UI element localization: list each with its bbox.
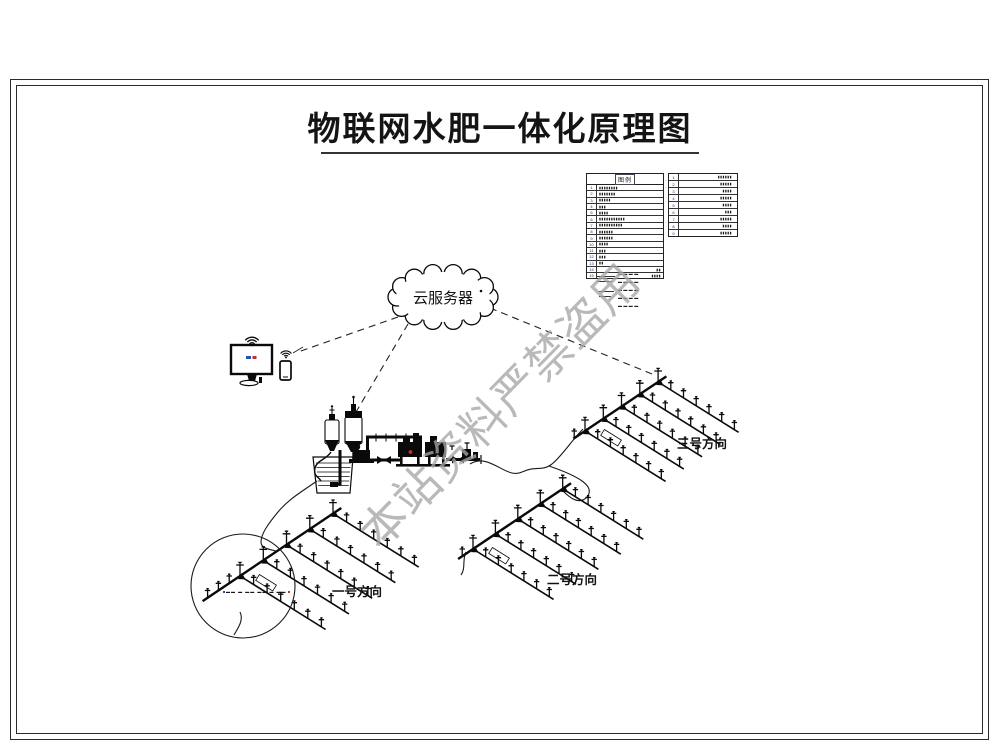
legend-row-desc: ▮▮▮▮▮▮▮▮▮▮ (597, 223, 663, 227)
legend-row-desc: ▮▮▮▮▮ (679, 196, 737, 200)
legend-row: 4▮▮▮▮▮ (669, 195, 737, 202)
legend-header: 图例 (587, 174, 663, 185)
leader-line (599, 291, 614, 292)
diagram-canvas: 云服务器 (0, 0, 1000, 750)
pipe-to-field3 (470, 429, 583, 473)
cloud-server-label: 云服务器 (413, 290, 473, 307)
legend-row-desc: ▮▮▮▮ (597, 242, 663, 246)
legend-row-desc: ▮▮ (597, 261, 663, 265)
irrigation-grid-1 (203, 500, 419, 630)
legend-row-number: 3 (669, 188, 679, 194)
field-label-2: 二号方向 (547, 572, 597, 587)
legend-row-number: 5 (669, 202, 679, 208)
legend-row-number: 4 (669, 195, 679, 201)
legend-row-desc: ▮▮▮▮ (597, 211, 663, 215)
legend-row: 1▮▮▮▮▮▮ (669, 174, 737, 181)
dashed-link-cloud-field3 (490, 308, 652, 374)
pipe-tail-field1 (234, 612, 241, 635)
legend-row: 2▮▮▮▮▮ (669, 181, 737, 188)
legend-row-number: 3 (587, 198, 597, 203)
micro-note: ▬▬▬▬ (618, 279, 640, 284)
monitor-icon (231, 345, 272, 386)
wifi-icon-phone (281, 351, 292, 358)
legend-row-number: 1 (587, 185, 597, 190)
micro-note: ▬▬▬▬ (618, 271, 640, 276)
legend-row: 5▮▮▮▮ (669, 202, 737, 209)
monitor-screen-red-pixel (253, 356, 257, 359)
legend-row-number: 2 (587, 191, 597, 196)
legend-row-desc: ▮▮▮▮▮▮▮ (597, 192, 663, 196)
leader-line (599, 296, 611, 297)
legend-row-desc: ▮▮▮▮ (679, 224, 737, 228)
legend-row: 3▮▮▮▮ (669, 188, 737, 195)
legend-row-desc: ▮▮▮ (597, 205, 663, 209)
legend-row-desc: ▮▮▮▮▮▮ (597, 236, 663, 240)
legend-row-number: 10 (587, 242, 597, 247)
legend-header-label: 图例 (615, 174, 635, 185)
legend-table-left: 图例 1▮▮▮▮▮▮▮▮2▮▮▮▮▮▮▮3▮▮▮▮▮4▮▮▮5▮▮▮▮6▮▮▮▮… (586, 173, 664, 279)
legend-row-number: 8 (587, 229, 597, 234)
legend-row-desc: ▮▮▮ (597, 249, 663, 253)
legend-row: 9▮▮▮▮▮ (669, 230, 737, 236)
legend-row-desc: ▮▮▮▮▮▮▮▮▮▮▮ (597, 217, 663, 221)
valve-train (446, 443, 481, 464)
dashed-link-cloud-monitor (298, 317, 398, 352)
leader-line (597, 276, 615, 277)
drawing-sheet: 物联网水肥一体化原理图 云服务器 (0, 0, 1000, 750)
dashed-link-cloud-station (356, 324, 408, 412)
fertilizer-tank-a (325, 405, 339, 451)
legend-row-number: 7 (669, 216, 679, 222)
legend-row-number: 2 (669, 181, 679, 187)
legend-row-number: 6 (669, 209, 679, 215)
legend-row-number: 11 (587, 248, 597, 253)
legend-row-desc: ▮▮▮ (597, 255, 663, 259)
detail-note-text: ▬▬ ▬ ▬▬ ▬▬ ▬ ▬▬ (226, 589, 287, 594)
field-label-1: 一号方向 (332, 584, 382, 599)
micro-note: ▬▬▬▬ (618, 303, 640, 308)
cloud-dot (480, 290, 483, 293)
legend-row-number: 14 (587, 267, 597, 272)
water-tank (313, 450, 353, 493)
leader-line (597, 281, 612, 282)
monitor-screen-blue-pixel (246, 356, 251, 359)
irrigation-grid-3 (572, 368, 739, 481)
legend-row-desc: ▮▮▮▮▮▮ (679, 175, 737, 179)
detail-note: ▬▬ ▬ ▬▬ ▬▬ ▬ ▬▬ (223, 589, 305, 594)
legend-row-desc: ▮▮▮▮ (679, 203, 737, 207)
legend-row-desc: ▮▮▮▮▮▮▮▮ (597, 186, 663, 190)
legend-row: 6▮▮▮ (669, 209, 737, 216)
micro-note: ▬▬▬▬ (618, 287, 640, 292)
legend-row-number: 6 (587, 216, 597, 221)
legend-row-desc: ▮▮▮ (679, 210, 737, 214)
legend-row-number: 12 (587, 254, 597, 259)
legend-row-number: 9 (587, 235, 597, 240)
legend-row-desc: ▮▮▮▮▮ (679, 217, 737, 221)
supply-pipes (234, 429, 589, 635)
equipment-station (313, 396, 481, 493)
legend-row-number: 9 (669, 230, 679, 236)
legend-row-desc: ▮▮▮▮▮ (597, 198, 663, 202)
legend-row-desc: ▮▮▮▮▮ (679, 231, 737, 235)
legend-row-number: 8 (669, 223, 679, 229)
micro-note: ▬▬▬▬ (618, 295, 640, 300)
legend-row: 7▮▮▮▮▮ (669, 216, 737, 223)
legend-row-desc: ▮▮▮▮ (679, 189, 737, 193)
legend-row-desc: ▮▮▮▮▮ (679, 182, 737, 186)
legend-row-number: 15 (587, 273, 597, 278)
alert-dot (409, 450, 413, 454)
legend-row-number: 13 (587, 261, 597, 266)
legend-row-number: 1 (669, 174, 679, 180)
fertilizer-tank-b (345, 396, 362, 452)
legend-row-number: 4 (587, 204, 597, 209)
phone-icon (280, 361, 291, 380)
detail-circle (191, 534, 295, 638)
legend-row: 8▮▮▮▮ (669, 223, 737, 230)
legend-row-desc: ▮▮▮▮▮▮ (597, 230, 663, 234)
filter-unit (396, 433, 450, 467)
legend-table-right: 1▮▮▮▮▮▮2▮▮▮▮▮3▮▮▮▮4▮▮▮▮▮5▮▮▮▮6▮▮▮7▮▮▮▮▮8… (668, 173, 738, 237)
legend-row-number: 7 (587, 223, 597, 228)
field-label-3: 三号方向 (677, 436, 727, 451)
legend-row-number: 5 (587, 210, 597, 215)
dashed-link-phone-tail (293, 347, 303, 353)
